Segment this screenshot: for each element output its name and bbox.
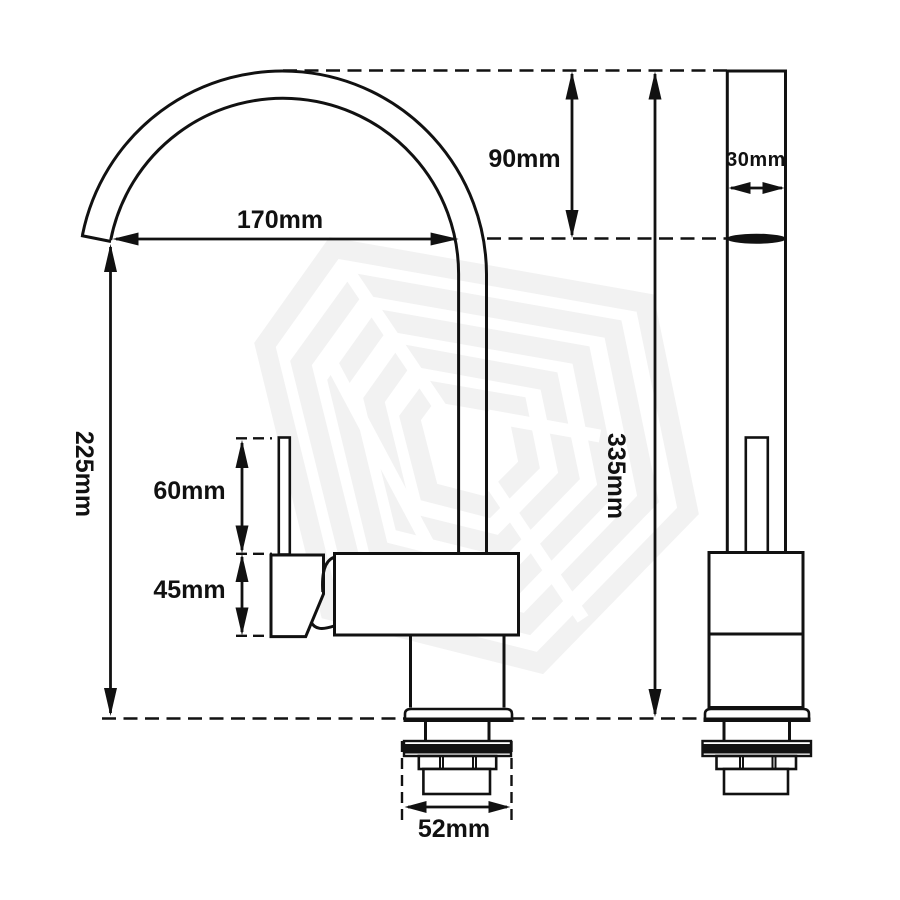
svg-text:90mm: 90mm bbox=[488, 145, 560, 173]
svg-text:60mm: 60mm bbox=[153, 477, 225, 505]
svg-text:45mm: 45mm bbox=[153, 576, 225, 604]
svg-text:170mm: 170mm bbox=[237, 206, 323, 234]
svg-text:225mm: 225mm bbox=[70, 431, 98, 517]
svg-text:30mm: 30mm bbox=[726, 149, 786, 171]
svg-text:335mm: 335mm bbox=[602, 433, 630, 519]
svg-text:52mm: 52mm bbox=[418, 815, 490, 843]
